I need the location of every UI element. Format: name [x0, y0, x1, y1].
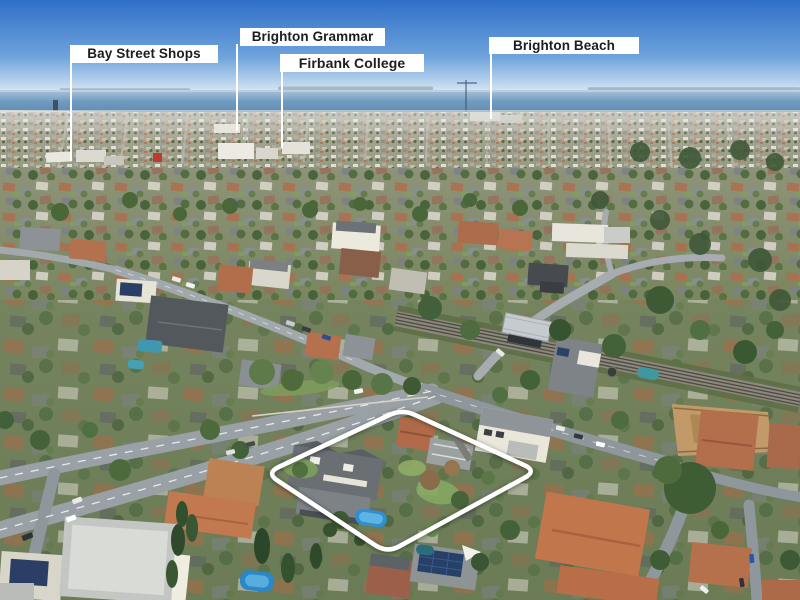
white-campus-building: [552, 223, 609, 243]
trampoline: [607, 367, 617, 377]
label-brighton-grammar: Brighton Grammar: [240, 28, 385, 46]
aerial-scene: [0, 0, 800, 600]
leader-line-firbank-college: [281, 71, 283, 148]
leader-line-brighton-beach: [490, 53, 492, 119]
label-firbank-college: Firbank College: [280, 54, 424, 73]
aerial-photo: Bay Street Shops Brighton Grammar Firban…: [0, 0, 800, 600]
horizon-line: [0, 90, 800, 92]
leader-line-brighton-grammar: [236, 44, 238, 131]
label-bay-street-shops: Bay Street Shops: [70, 45, 218, 63]
solar-roof: [9, 559, 49, 587]
solar-roof: [120, 282, 143, 297]
label-brighton-beach: Brighton Beach: [489, 37, 639, 54]
haze: [0, 110, 800, 140]
leader-line-bay-street-shops: [70, 62, 72, 161]
